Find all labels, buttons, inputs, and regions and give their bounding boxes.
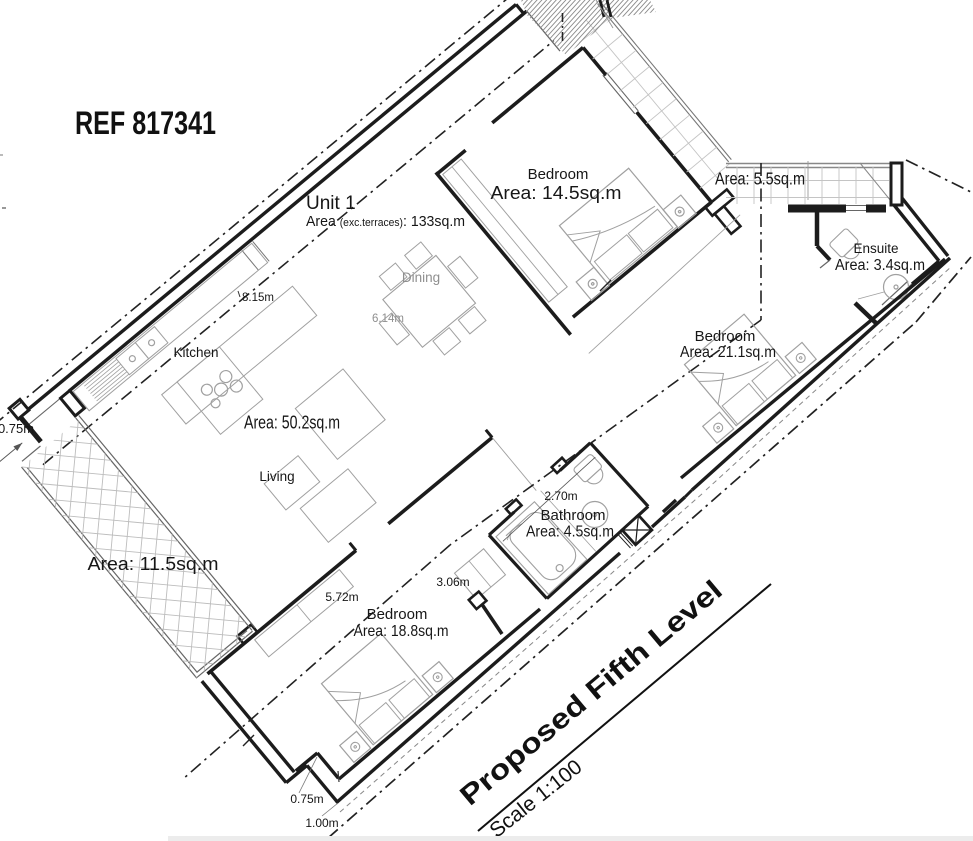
svg-text:Area: 5.5sq.m: Area: 5.5sq.m <box>715 169 805 189</box>
svg-text:Kitchen: Kitchen <box>173 345 218 360</box>
svg-text:0.75m: 0.75m <box>290 792 323 806</box>
svg-text:5.72m: 5.72m <box>325 590 358 604</box>
svg-text:0.75m: 0.75m <box>0 421 34 436</box>
svg-text:Area: 18.8sq.m: Area: 18.8sq.m <box>354 623 449 640</box>
svg-text:Living: Living <box>259 469 294 484</box>
svg-text:8.15m: 8.15m <box>242 292 274 304</box>
svg-text:Ensuite: Ensuite <box>853 241 898 256</box>
svg-text:6.14m: 6.14m <box>372 313 404 325</box>
svg-text:Area: 50.2sq.m: Area: 50.2sq.m <box>244 412 340 433</box>
svg-text:Bedroom: Bedroom <box>367 606 428 623</box>
svg-text:Unit 1: Unit 1 <box>306 193 356 214</box>
svg-text:Area: 11.5sq.m: Area: 11.5sq.m <box>88 553 219 574</box>
svg-text:Bedroom: Bedroom <box>695 328 756 345</box>
svg-text:Area: 14.5sq.m: Area: 14.5sq.m <box>491 182 622 203</box>
svg-text:Bedroom: Bedroom <box>528 166 589 183</box>
svg-text:Area: 21.1sq.m: Area: 21.1sq.m <box>680 344 776 361</box>
svg-text:REF 817341: REF 817341 <box>75 105 216 141</box>
svg-text:2.70m: 2.70m <box>544 489 577 503</box>
svg-text:3.06m: 3.06m <box>436 575 469 589</box>
svg-text:Bathroom: Bathroom <box>540 507 605 524</box>
svg-text:Dining: Dining <box>402 270 440 285</box>
svg-text:Area: 3.4sq.m: Area: 3.4sq.m <box>835 257 925 274</box>
svg-text:1.00m: 1.00m <box>305 816 338 830</box>
svg-text:Area: 4.5sq.m: Area: 4.5sq.m <box>526 524 614 541</box>
